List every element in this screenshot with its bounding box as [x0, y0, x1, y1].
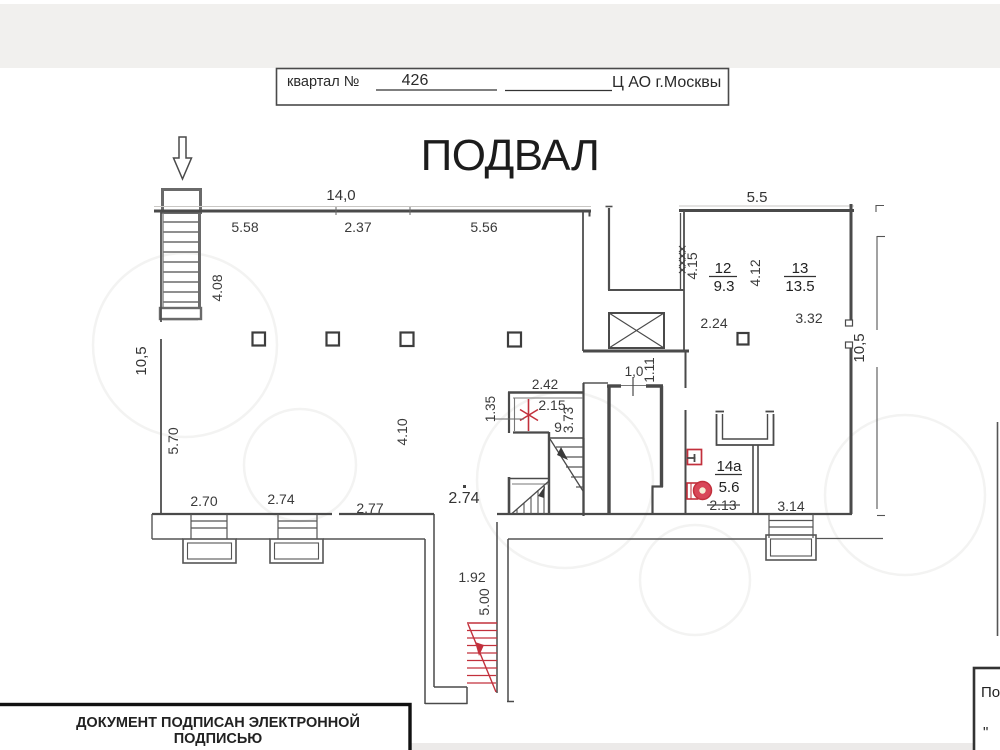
svg-text:9.3: 9.3	[714, 278, 735, 295]
svg-text:5.70: 5.70	[165, 427, 181, 454]
svg-text:426: 426	[402, 72, 429, 89]
svg-text:10,5: 10,5	[133, 346, 150, 375]
svg-text:": "	[983, 724, 988, 741]
svg-text:1,0: 1,0	[625, 364, 644, 379]
svg-text:13: 13	[792, 260, 809, 277]
svg-text:4.12: 4.12	[747, 259, 763, 286]
svg-text:2.24: 2.24	[700, 315, 727, 331]
svg-text:2.74: 2.74	[448, 490, 479, 507]
svg-text:5.5: 5.5	[747, 189, 768, 206]
svg-text:4.15: 4.15	[684, 252, 700, 279]
svg-text:13.5: 13.5	[785, 278, 814, 295]
svg-text:1.11: 1.11	[642, 357, 657, 382]
svg-text:4.10: 4.10	[394, 418, 410, 445]
svg-text:3.32: 3.32	[795, 310, 822, 326]
svg-text:2.37: 2.37	[344, 219, 371, 235]
svg-text:2.70: 2.70	[190, 493, 217, 509]
svg-text:4.08: 4.08	[209, 274, 225, 301]
svg-text:14а: 14а	[716, 458, 742, 475]
svg-text:ДОКУМЕНТ ПОДПИСАН ЭЛЕКТРОННОЙ: ДОКУМЕНТ ПОДПИСАН ЭЛЕКТРОННОЙ	[76, 713, 360, 731]
svg-text:По: По	[981, 684, 1000, 701]
svg-text:12: 12	[715, 260, 732, 277]
svg-text:квартал №: квартал №	[287, 74, 359, 90]
svg-text:5.58: 5.58	[231, 219, 258, 235]
svg-text:5.56: 5.56	[470, 219, 497, 235]
svg-text:14,0: 14,0	[326, 187, 355, 204]
svg-text:3.14: 3.14	[777, 498, 804, 514]
svg-text:1.35: 1.35	[483, 396, 498, 422]
svg-text:ПОДВАЛ: ПОДВАЛ	[421, 131, 600, 180]
svg-text:2.77: 2.77	[356, 500, 383, 516]
svg-text:1.92: 1.92	[458, 569, 485, 585]
svg-text:5.00: 5.00	[476, 588, 492, 615]
svg-text:5.6: 5.6	[719, 479, 740, 496]
svg-text:10,5: 10,5	[851, 333, 868, 362]
svg-text:ПОДПИСЬЮ: ПОДПИСЬЮ	[174, 731, 263, 747]
svg-text:2.42: 2.42	[532, 377, 558, 392]
svg-text:2.74: 2.74	[267, 491, 294, 507]
svg-text:3.73: 3.73	[561, 407, 576, 433]
svg-text:Ц АО г.Москвы: Ц АО г.Москвы	[612, 74, 721, 91]
